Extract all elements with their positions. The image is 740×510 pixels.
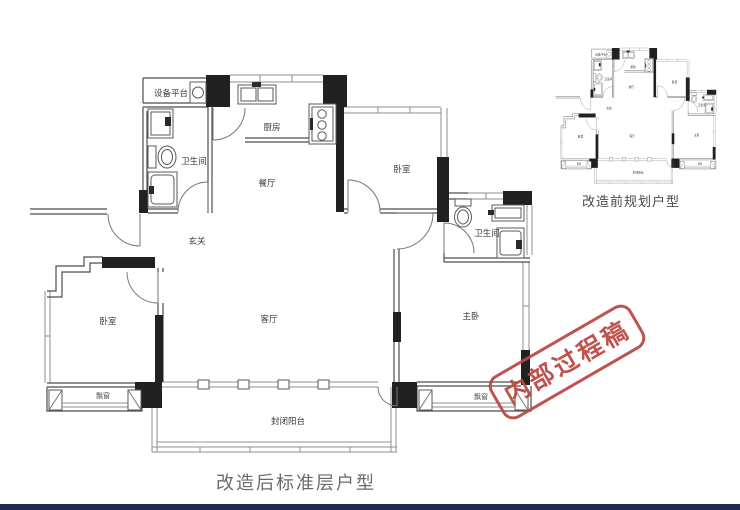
bottom-bar: [0, 504, 740, 510]
stove-icon: [309, 104, 336, 144]
mini-plan-caption: 改造前规划户型: [582, 194, 680, 209]
room-label-bay-right: 飘窗: [474, 392, 488, 401]
room-label-bathroom-left: 卫生间: [181, 156, 207, 166]
sink-icon: [488, 205, 524, 221]
room-label-bedroom-left: 卧室: [99, 316, 117, 326]
room-label-bay-left: 飘窗: [96, 391, 110, 400]
mini-floor-plan: [556, 48, 717, 184]
room-label-bedroom-top-right: 卧室: [393, 164, 411, 174]
watermark-stamp: 内部过程稿: [486, 302, 648, 422]
fixtures: [49, 82, 528, 410]
toilet-icon: [455, 199, 472, 227]
kitchen-sink-icon: [238, 82, 276, 104]
room-label-dining: 餐厅: [258, 178, 276, 188]
room-label-master: 主卧: [462, 311, 480, 321]
toilet-icon: [148, 146, 176, 168]
room-label-equipment-platform: 设备平台: [154, 88, 188, 98]
main-floor-plan: 设备平台 卫生间 厨房 餐厅 玄关 卧室 卧室 客厅 主卧 卫生间 飘窗 飘窗 …: [30, 75, 532, 452]
room-label-balcony: 封闭阳台: [271, 416, 305, 426]
shower-icon: [497, 228, 524, 258]
washer-icon: [190, 82, 206, 103]
room-label-bathroom-right: 卫生间: [474, 228, 500, 238]
bathtub-icon: [148, 172, 177, 207]
window-posts: [198, 380, 329, 389]
sink-icon: [148, 109, 173, 138]
main-plan-caption: 改造后标准层户型: [216, 473, 376, 493]
room-label-kitchen: 厨房: [263, 122, 280, 132]
floor-plan-image: 设备平台 卫生间 厨房 餐厅 玄关 卧室 卧室 客厅 主卧 卫生间 飘窗 飘窗 …: [0, 0, 740, 510]
room-label-foyer: 玄关: [188, 236, 206, 246]
room-label-living: 客厅: [260, 314, 278, 324]
